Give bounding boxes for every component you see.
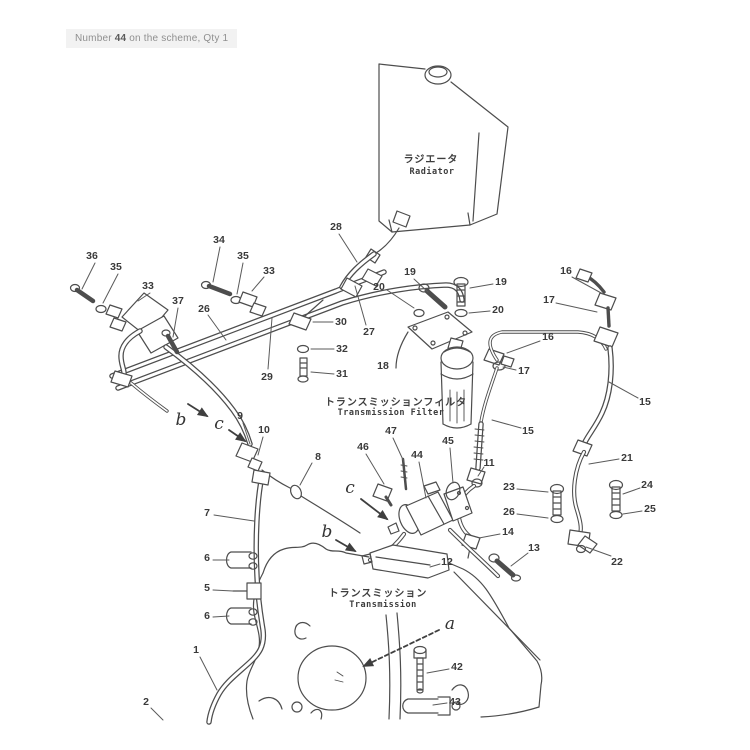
callout-26: 26 xyxy=(503,506,515,518)
leader-line-28 xyxy=(339,234,357,262)
arrowhead-b xyxy=(345,543,357,552)
leader-line-a xyxy=(364,630,439,666)
callout-29: 29 xyxy=(261,371,273,383)
callout-45: 45 xyxy=(442,435,454,447)
bolt-36-washer-35 xyxy=(71,285,107,313)
leader-line-14 xyxy=(479,534,500,538)
view-letter-b: b xyxy=(322,522,333,542)
leader-line-15 xyxy=(609,382,638,398)
leader-line-2 xyxy=(151,708,163,720)
callout-7: 7 xyxy=(204,507,210,519)
callout-20: 20 xyxy=(373,281,385,293)
leader-line-44 xyxy=(419,462,426,498)
leader-line-33 xyxy=(252,277,264,291)
callout-18: 18 xyxy=(377,360,389,372)
hose-7 xyxy=(209,470,270,722)
callout-19: 19 xyxy=(495,276,507,288)
callout-46: 46 xyxy=(357,441,369,453)
callout-27: 27 xyxy=(363,326,375,338)
callout-19: 19 xyxy=(404,266,416,278)
leader-line-47 xyxy=(393,438,404,462)
view-letter-c: c xyxy=(214,414,224,434)
leader-line-20 xyxy=(387,290,414,308)
callout-24: 24 xyxy=(641,479,653,491)
view-letter-a: a xyxy=(445,614,455,634)
leader-line-21 xyxy=(589,459,619,464)
leader-line-8 xyxy=(300,463,312,485)
callout-25: 25 xyxy=(644,503,656,515)
callout-23: 23 xyxy=(503,481,515,493)
leader-line-26 xyxy=(517,514,548,518)
callout-35: 35 xyxy=(237,250,249,262)
leader-line-7 xyxy=(214,515,254,521)
hose-21-elbow-22 xyxy=(568,452,597,553)
callout-17: 17 xyxy=(518,365,530,377)
leader-line-35 xyxy=(237,263,243,294)
callout-11: 11 xyxy=(483,457,494,469)
parts-diagram-page: Number 44 on the scheme, Qty 1 xyxy=(0,0,750,750)
callout-17: 17 xyxy=(543,294,555,306)
leader-line-29 xyxy=(268,318,272,369)
leader-line-43 xyxy=(433,703,447,705)
leader-line-25 xyxy=(623,511,642,514)
callout-2: 2 xyxy=(143,696,149,708)
callout-28: 28 xyxy=(330,221,342,233)
leader-line-42 xyxy=(427,669,449,673)
leader-line-31 xyxy=(311,372,334,374)
transmission-filter-label-en: Transmission Filter xyxy=(338,408,445,418)
callout-47: 47 xyxy=(385,425,397,437)
leader-line-15 xyxy=(492,420,521,428)
leader-line-20 xyxy=(469,311,490,313)
callout-12: 12 xyxy=(441,556,453,568)
callout-6: 6 xyxy=(204,552,210,564)
callout-1: 1 xyxy=(193,644,199,656)
bolt-34-washer-35 xyxy=(202,282,242,304)
callout-34: 34 xyxy=(213,234,225,246)
leader-line-46 xyxy=(366,454,384,484)
callout-42: 42 xyxy=(451,661,463,673)
transmission-label-jp: トランスミッション xyxy=(329,585,428,600)
callout-36: 36 xyxy=(86,250,98,262)
callout-13: 13 xyxy=(528,542,540,554)
leader-line-17 xyxy=(503,367,516,370)
callout-15: 15 xyxy=(639,396,651,408)
callout-35: 35 xyxy=(110,261,122,273)
leader-line-23 xyxy=(517,489,548,492)
view-letter-b: b xyxy=(176,410,187,430)
callout-8: 8 xyxy=(315,451,321,463)
leader-line-34 xyxy=(213,247,220,282)
leader-line-1 xyxy=(200,657,217,690)
leader-line-10 xyxy=(258,437,263,455)
leader-line-13 xyxy=(511,553,528,566)
callout-20: 20 xyxy=(492,304,504,316)
leader-line-19 xyxy=(470,284,493,288)
callout-26: 26 xyxy=(198,303,210,315)
callout-30: 30 xyxy=(335,316,347,328)
leader-line-36 xyxy=(82,263,95,289)
leader-line-27 xyxy=(355,286,366,325)
callout-5: 5 xyxy=(204,582,210,594)
bolt-23-washer-26 xyxy=(551,485,564,523)
arrowhead-b xyxy=(197,407,209,417)
callout-44: 44 xyxy=(411,449,423,461)
callout-16: 16 xyxy=(560,265,572,277)
leader-lines-layer xyxy=(82,234,642,720)
callout-10: 10 xyxy=(258,424,270,436)
callout-33: 33 xyxy=(263,265,275,277)
callout-16: 16 xyxy=(542,331,554,343)
callout-22: 22 xyxy=(611,556,623,568)
bracket-12 xyxy=(362,545,449,578)
arrowhead-a xyxy=(362,658,374,667)
leader-line-35 xyxy=(103,274,118,303)
callout-9: 9 xyxy=(237,410,243,422)
view-letter-c: c xyxy=(345,478,355,498)
callout-32: 32 xyxy=(336,343,348,355)
callout-15: 15 xyxy=(522,425,534,437)
callout-14: 14 xyxy=(502,526,514,538)
callout-37: 37 xyxy=(172,295,184,307)
callout-31: 31 xyxy=(336,368,348,380)
bolt-24-washer-25 xyxy=(610,481,623,519)
bolt-13 xyxy=(489,554,521,581)
leader-line-24 xyxy=(623,488,640,494)
leader-line-17 xyxy=(556,303,597,312)
callout-6: 6 xyxy=(204,610,210,622)
transmission-filter xyxy=(441,338,473,428)
leader-line-45 xyxy=(450,448,453,483)
exploded-parts-drawing xyxy=(0,0,750,750)
radiator-label-jp: ラジエータ xyxy=(404,151,459,166)
callout-43: 43 xyxy=(449,696,461,708)
transmission-label-en: Transmission xyxy=(349,600,416,610)
connector-33-fittings xyxy=(239,292,266,316)
leader-line-37 xyxy=(173,308,178,337)
callout-21: 21 xyxy=(621,452,633,464)
arrowhead-c xyxy=(377,510,388,520)
right-hose-15 xyxy=(573,269,618,456)
radiator-label-en: Radiator xyxy=(410,167,455,177)
leader-line-5 xyxy=(213,590,233,591)
callout-33: 33 xyxy=(142,280,154,292)
transmission-filter-label-jp: トランスミッションフィルタ xyxy=(325,394,467,409)
leader-line-16 xyxy=(507,341,540,353)
bolt-42 xyxy=(414,647,426,694)
